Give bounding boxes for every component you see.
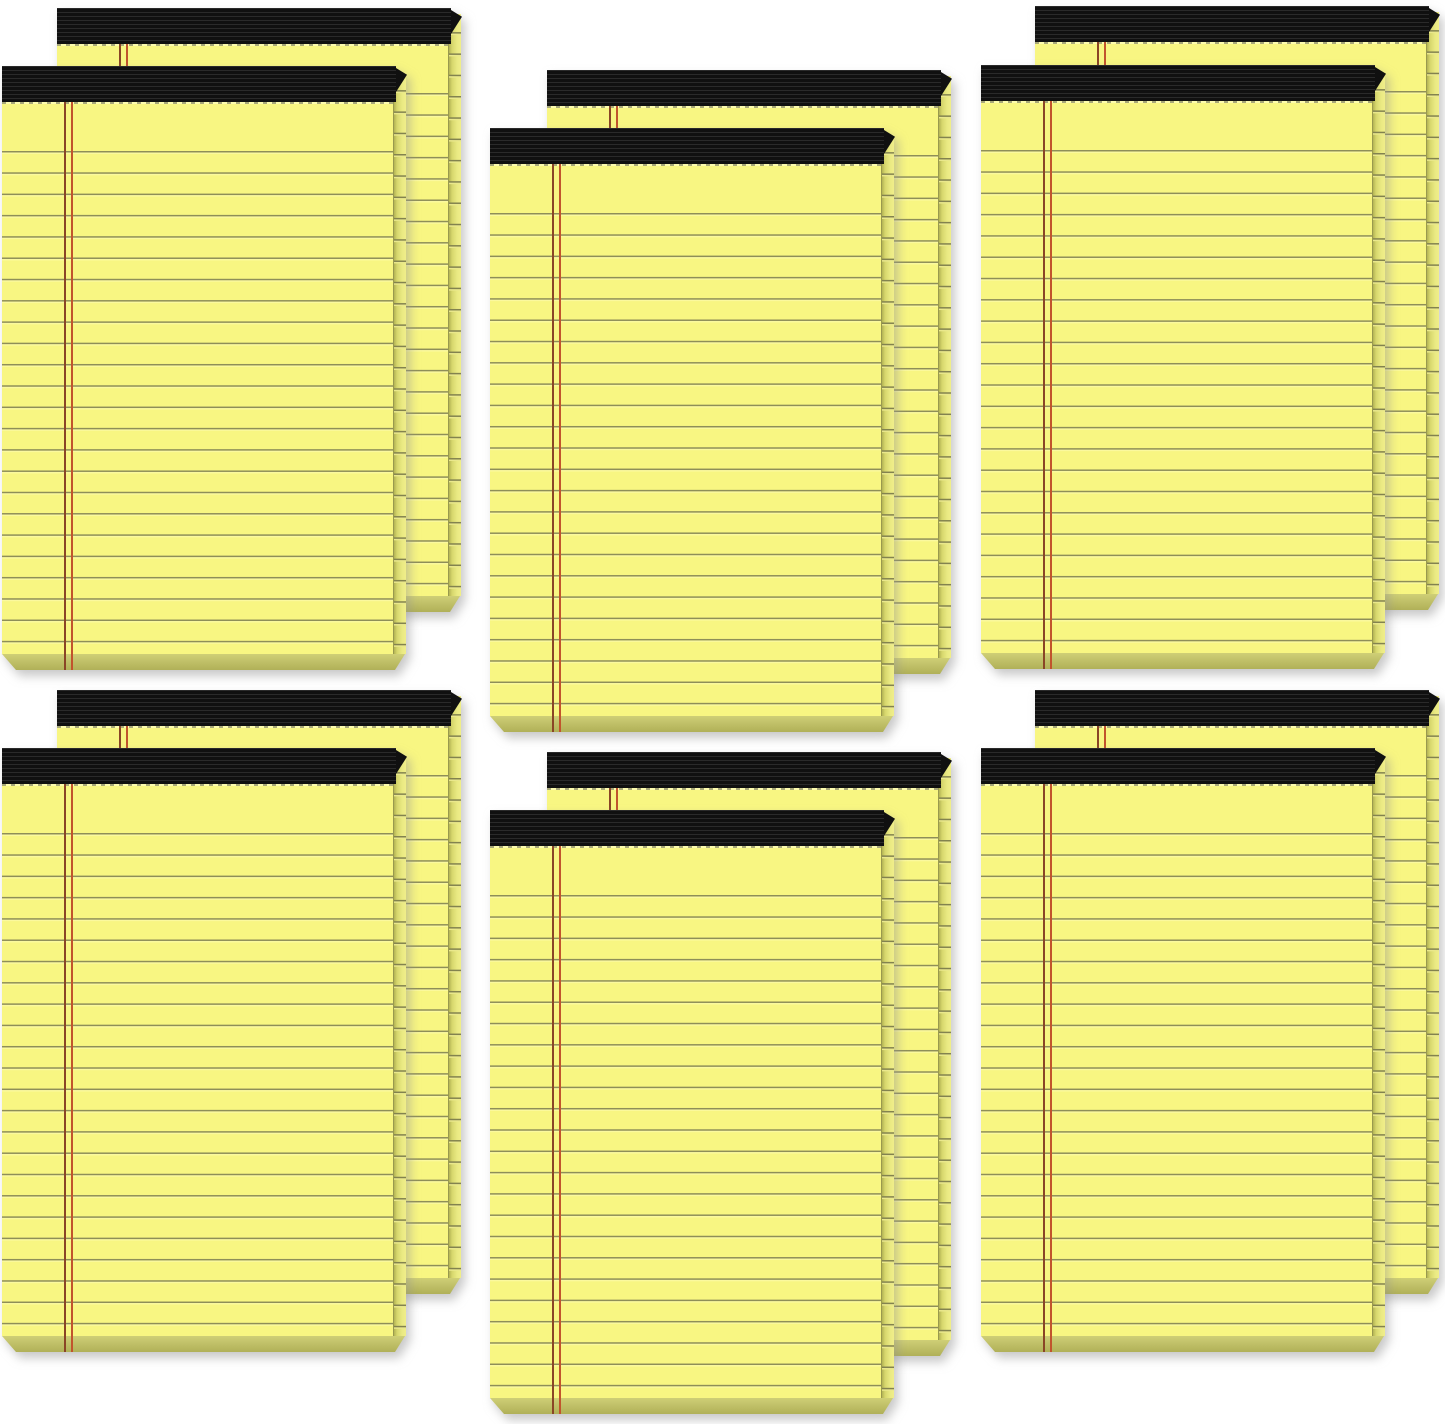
black-binding-strip <box>57 8 451 44</box>
ruled-lines <box>981 833 1372 1336</box>
pad-bottom-bevel-edge <box>981 653 1384 669</box>
black-binding-strip <box>547 70 941 106</box>
pad-page-stack-edge <box>448 696 461 1278</box>
black-binding-strip <box>547 752 941 788</box>
perforation-line <box>490 164 881 166</box>
red-margin-line <box>552 164 561 732</box>
perforation-line <box>57 726 448 728</box>
ruled-lines <box>2 833 393 1336</box>
pad-bottom-bevel-edge <box>2 654 405 670</box>
product-photo <box>0 0 1445 1424</box>
pad-bottom-bevel-edge <box>490 716 893 732</box>
perforation-line <box>547 106 938 108</box>
pad-page-stack-edge <box>938 76 951 658</box>
red-margin-line <box>64 784 73 1352</box>
perforation-line <box>981 101 1372 103</box>
pad-page-stack-edge <box>881 134 894 716</box>
pad-page-stack-edge <box>1426 12 1439 594</box>
pad-paper-face <box>981 65 1372 653</box>
perforation-line <box>57 44 448 46</box>
pad-page-stack-edge <box>448 14 461 596</box>
legal-pad-stack2-front <box>490 128 893 732</box>
pad-page-stack-edge <box>1372 71 1385 653</box>
ruled-lines <box>490 213 881 716</box>
perforation-line <box>1035 726 1426 728</box>
pad-page-stack-edge <box>393 754 406 1336</box>
pad-bottom-bevel-edge <box>981 1336 1384 1352</box>
pad-paper-face <box>981 748 1372 1336</box>
pad-paper-face <box>2 66 393 654</box>
red-margin-line <box>64 102 73 670</box>
legal-pad-stack6-front <box>981 748 1384 1352</box>
red-margin-line <box>1043 784 1052 1352</box>
legal-pad-stack5-front <box>490 810 893 1414</box>
perforation-line <box>981 784 1372 786</box>
pad-paper-face <box>2 748 393 1336</box>
pad-page-stack-edge <box>938 758 951 1340</box>
perforation-line <box>2 784 393 786</box>
black-binding-strip <box>2 66 396 102</box>
ruled-lines <box>2 151 393 654</box>
legal-pad-stack3-front <box>981 65 1384 669</box>
red-margin-line <box>1043 101 1052 669</box>
black-binding-strip <box>1035 690 1429 726</box>
black-binding-strip <box>981 65 1375 101</box>
black-binding-strip <box>981 748 1375 784</box>
perforation-line <box>490 846 881 848</box>
perforation-line <box>2 102 393 104</box>
pad-bottom-bevel-edge <box>490 1398 893 1414</box>
ruled-lines <box>490 895 881 1398</box>
legal-pad-stack1-front <box>2 66 405 670</box>
legal-pad-stack4-front <box>2 748 405 1352</box>
black-binding-strip <box>57 690 451 726</box>
pad-bottom-bevel-edge <box>2 1336 405 1352</box>
pad-paper-face <box>490 810 881 1398</box>
pad-paper-face <box>490 128 881 716</box>
black-binding-strip <box>2 748 396 784</box>
perforation-line <box>1035 42 1426 44</box>
pad-page-stack-edge <box>393 72 406 654</box>
red-margin-line <box>552 846 561 1414</box>
black-binding-strip <box>490 810 884 846</box>
pad-page-stack-edge <box>1426 696 1439 1278</box>
perforation-line <box>547 788 938 790</box>
black-binding-strip <box>1035 6 1429 42</box>
pad-page-stack-edge <box>881 816 894 1398</box>
black-binding-strip <box>490 128 884 164</box>
pad-page-stack-edge <box>1372 754 1385 1336</box>
ruled-lines <box>981 150 1372 653</box>
